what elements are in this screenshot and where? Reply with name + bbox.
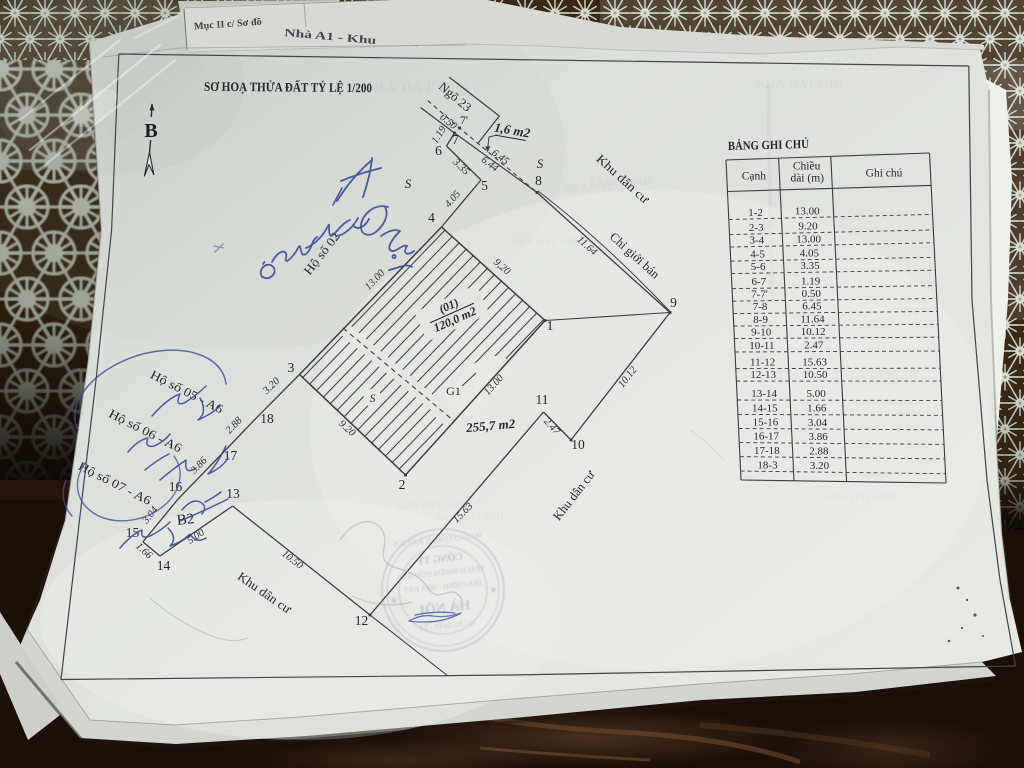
svg-text:5: 5 xyxy=(481,178,488,193)
svg-text:1.19: 1.19 xyxy=(801,275,821,287)
svg-text:8-9: 8-9 xyxy=(753,314,768,326)
svg-text:12-13: 12-13 xyxy=(750,369,776,381)
svg-text:BẢNG GHI CHÚ: BẢNG GHI CHÚ xyxy=(728,137,809,153)
svg-text:16-17: 16-17 xyxy=(753,431,779,443)
svg-text:14-15: 14-15 xyxy=(752,402,778,414)
svg-text:10-11: 10-11 xyxy=(749,340,774,352)
svg-text:8: 8 xyxy=(535,173,542,188)
svg-text:S: S xyxy=(405,176,412,191)
svg-text:NHÀ ĐẤT GHI: NHÀ ĐẤT GHI xyxy=(756,219,824,233)
svg-text:7-7': 7-7' xyxy=(751,289,768,301)
svg-text:15-16: 15-16 xyxy=(753,417,779,429)
svg-text:17-18: 17-18 xyxy=(754,445,780,457)
svg-text:11.64: 11.64 xyxy=(800,313,825,325)
svg-text:B2: B2 xyxy=(176,511,195,529)
svg-text:1: 1 xyxy=(547,318,554,333)
svg-text:3: 3 xyxy=(288,360,295,375)
svg-text:18-3: 18-3 xyxy=(757,459,778,471)
svg-text:11: 11 xyxy=(536,392,549,407)
svg-text:0.50: 0.50 xyxy=(802,288,822,300)
svg-text:14: 14 xyxy=(157,558,171,573)
svg-text:★: ★ xyxy=(489,584,498,595)
svg-text:2.47: 2.47 xyxy=(804,339,824,351)
svg-text:3.20: 3.20 xyxy=(810,460,830,472)
svg-text:NHÀ ĐẤT GHI: NHÀ ĐẤT GHI xyxy=(756,76,844,91)
svg-text:1.66: 1.66 xyxy=(807,403,827,415)
svg-text:TÀI CHÍNH: TÀI CHÍNH xyxy=(587,175,653,189)
svg-text:NHÀ ĐẤT GHI: NHÀ ĐẤT GHI xyxy=(361,78,469,97)
svg-text:7': 7' xyxy=(460,113,468,127)
svg-text:Ghi chú: Ghi chú xyxy=(866,168,903,180)
svg-text:6.45: 6.45 xyxy=(802,301,822,313)
svg-text:12: 12 xyxy=(355,613,369,628)
svg-text:13.00: 13.00 xyxy=(795,205,820,217)
svg-text:S: S xyxy=(370,393,376,405)
svg-text:10.12: 10.12 xyxy=(801,326,826,338)
svg-text:18: 18 xyxy=(260,411,274,426)
svg-text:5.00: 5.00 xyxy=(806,388,826,400)
svg-text:4: 4 xyxy=(428,210,435,225)
svg-text:4-5: 4-5 xyxy=(750,249,765,261)
svg-text:SƠ HOẠ THỬA ĐẤT TỶ LỆ 1/200: SƠ HOẠ THỬA ĐẤT TỶ LỆ 1/200 xyxy=(204,79,372,95)
svg-text:3-4: 3-4 xyxy=(750,234,765,246)
svg-text:2.88: 2.88 xyxy=(809,445,829,457)
svg-text:6-7: 6-7 xyxy=(752,276,767,288)
svg-text:11-12: 11-12 xyxy=(750,357,775,369)
svg-text:10.50: 10.50 xyxy=(803,369,828,381)
svg-text:7: 7 xyxy=(452,132,459,147)
svg-text:★: ★ xyxy=(389,595,398,606)
svg-text:3.86: 3.86 xyxy=(809,431,829,443)
svg-text:13.00: 13.00 xyxy=(796,233,821,245)
svg-text:dài (m): dài (m) xyxy=(790,173,824,185)
svg-text:5-6: 5-6 xyxy=(751,261,766,273)
svg-text:Cạnh: Cạnh xyxy=(742,171,767,183)
svg-text:NHÀ ĐẤT GHI: NHÀ ĐẤT GHI xyxy=(842,369,917,385)
svg-text:2: 2 xyxy=(399,477,406,492)
svg-text:4.05: 4.05 xyxy=(800,248,820,260)
svg-text:3.04: 3.04 xyxy=(808,417,828,429)
svg-text:15.63: 15.63 xyxy=(802,356,827,368)
svg-text:B: B xyxy=(144,120,157,142)
svg-text:Chiều: Chiều xyxy=(793,159,821,172)
svg-text:9-10: 9-10 xyxy=(751,326,772,338)
svg-text:9: 9 xyxy=(670,295,677,310)
svg-text:G1: G1 xyxy=(446,384,461,398)
svg-text:1-2: 1-2 xyxy=(748,207,763,219)
svg-text:S: S xyxy=(537,156,544,171)
svg-text:13-14: 13-14 xyxy=(751,388,777,400)
svg-text:3.35: 3.35 xyxy=(800,260,820,272)
svg-text:7-8: 7-8 xyxy=(753,301,768,313)
svg-text:10: 10 xyxy=(571,437,585,452)
